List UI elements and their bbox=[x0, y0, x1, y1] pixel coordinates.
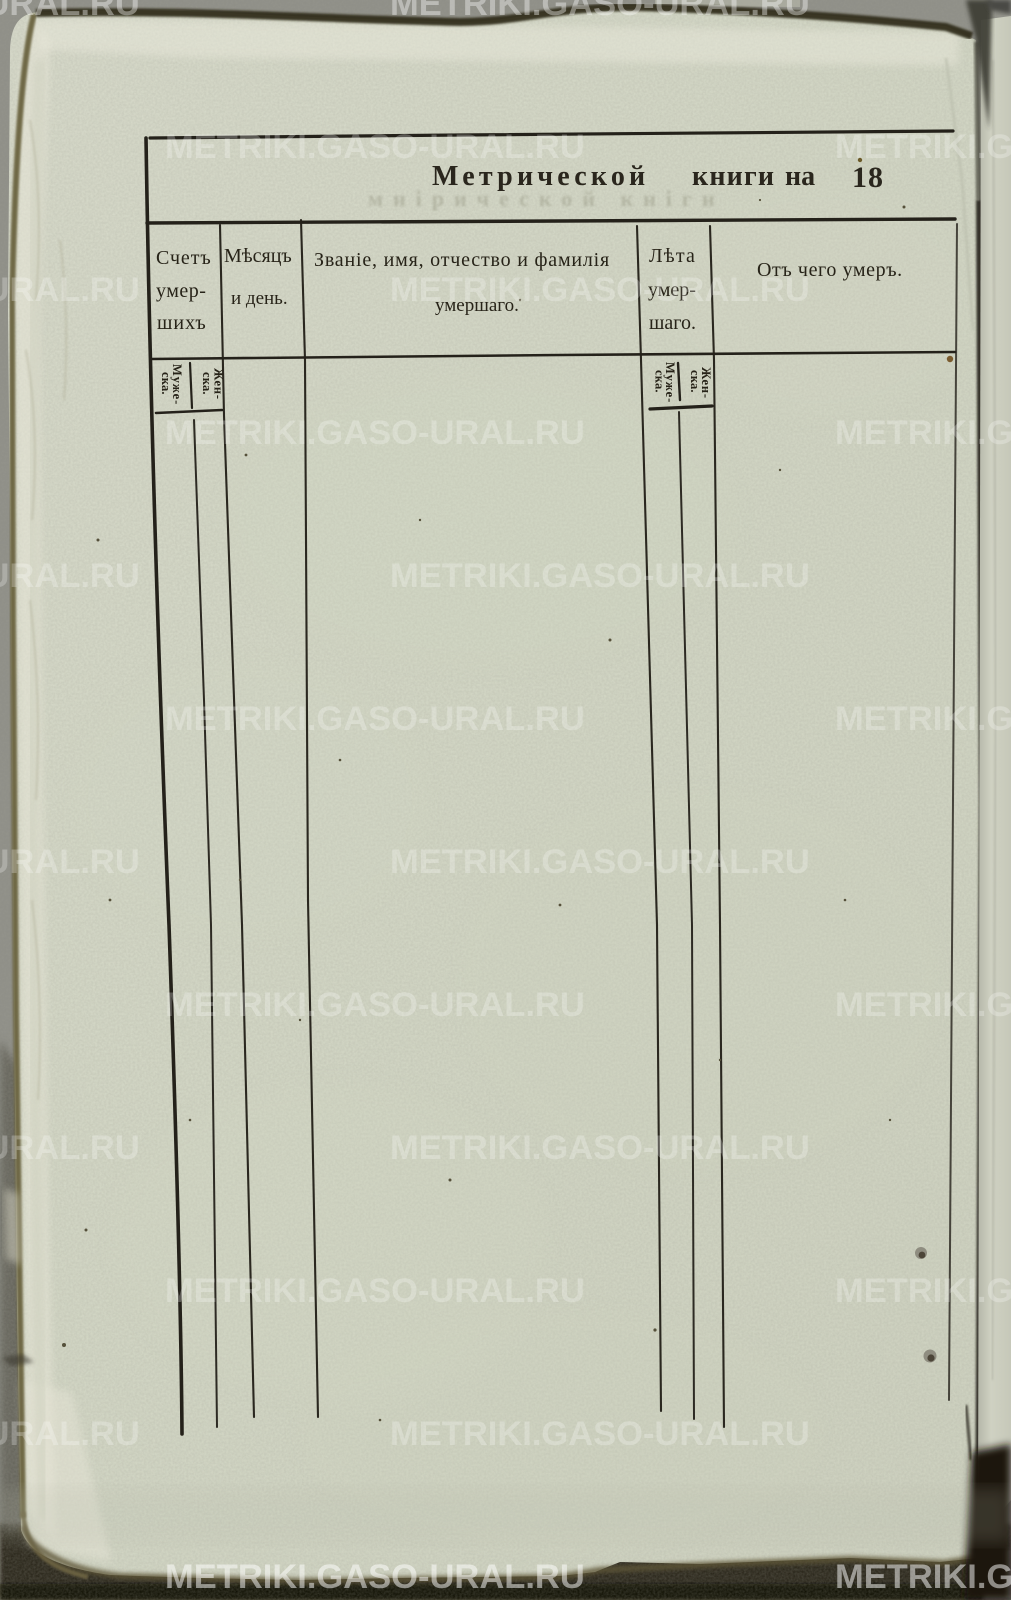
svg-text:METRIKI.GASO-URAL.RU: METRIKI.GASO-URAL.RU bbox=[390, 1129, 810, 1167]
svg-text:METRIKI.GASO-URAL.RU: METRIKI.GASO-URAL.RU bbox=[0, 843, 140, 881]
svg-text:на: на bbox=[785, 161, 815, 192]
svg-text:METRIKI.GASO-URAL.RU: METRIKI.GASO-URAL.RU bbox=[390, 843, 810, 881]
svg-text:ска.: ска. bbox=[200, 372, 214, 395]
svg-text:METRIKI.GASO-URAL.RU: METRIKI.GASO-URAL.RU bbox=[390, 0, 810, 23]
svg-text:METRIKI.GASO-URAL.RU: METRIKI.GASO-URAL.RU bbox=[165, 1558, 585, 1596]
svg-text:METRIKI.GASO-URAL.RU: METRIKI.GASO-URAL.RU bbox=[165, 1272, 585, 1310]
svg-text:METRIKI.GASO-URAL.RU: METRIKI.GASO-URAL.RU bbox=[0, 1129, 140, 1167]
svg-text:мнірической кнігн: мнірической кнігн bbox=[368, 186, 725, 211]
svg-text:ска.: ска. bbox=[653, 370, 667, 393]
svg-text:METRIKI.GASO-URAL.RU: METRIKI.GASO-URAL.RU bbox=[835, 1558, 1011, 1596]
svg-text:умер-: умер- bbox=[156, 280, 206, 302]
svg-text:METRIKI.GASO-URAL.RU: METRIKI.GASO-URAL.RU bbox=[165, 700, 585, 738]
svg-text:METRIKI.GASO-URAL.RU: METRIKI.GASO-URAL.RU bbox=[835, 986, 1011, 1024]
svg-text:METRIKI.GASO-URAL.RU: METRIKI.GASO-URAL.RU bbox=[835, 128, 1011, 166]
svg-text:METRIKI.GASO-URAL.RU: METRIKI.GASO-URAL.RU bbox=[835, 700, 1011, 738]
svg-text:METRIKI.GASO-URAL.RU: METRIKI.GASO-URAL.RU bbox=[0, 0, 140, 23]
svg-text:ска.: ска. bbox=[159, 372, 173, 395]
svg-text:METRIKI.GASO-URAL.RU: METRIKI.GASO-URAL.RU bbox=[835, 414, 1011, 452]
svg-text:METRIKI.GASO-URAL.RU: METRIKI.GASO-URAL.RU bbox=[390, 557, 810, 595]
svg-text:METRIKI.GASO-URAL.RU: METRIKI.GASO-URAL.RU bbox=[165, 986, 585, 1024]
svg-text:METRIKI.GASO-URAL.RU: METRIKI.GASO-URAL.RU bbox=[0, 557, 140, 595]
svg-text:Званіе, имя, отчество и фамилі: Званіе, имя, отчество и фамилія bbox=[314, 249, 610, 271]
svg-text:METRIKI.GASO-URAL.RU: METRIKI.GASO-URAL.RU bbox=[165, 128, 585, 166]
svg-text:шихъ: шихъ bbox=[157, 312, 207, 334]
svg-text:шаго.: шаго. bbox=[649, 312, 696, 334]
svg-text:METRIKI.GASO-URAL.RU: METRIKI.GASO-URAL.RU bbox=[835, 1272, 1011, 1310]
svg-text:ска.: ска. bbox=[688, 370, 702, 393]
svg-text:METRIKI.GASO-URAL.RU: METRIKI.GASO-URAL.RU bbox=[165, 414, 585, 452]
svg-text:Лѣта: Лѣта bbox=[649, 245, 696, 267]
svg-text:Мѣсяцъ: Мѣсяцъ bbox=[224, 245, 292, 267]
svg-text:и день.: и день. bbox=[231, 288, 288, 309]
svg-text:METRIKI.GASO-URAL.RU: METRIKI.GASO-URAL.RU bbox=[0, 271, 140, 309]
svg-text:METRIKI.GASO-URAL.RU: METRIKI.GASO-URAL.RU bbox=[390, 1415, 810, 1453]
svg-text:METRIKI.GASO-URAL.RU: METRIKI.GASO-URAL.RU bbox=[390, 271, 810, 309]
svg-text:Счетъ: Счетъ bbox=[156, 247, 212, 269]
svg-text:METRIKI.GASO-URAL.RU: METRIKI.GASO-URAL.RU bbox=[0, 1415, 140, 1453]
